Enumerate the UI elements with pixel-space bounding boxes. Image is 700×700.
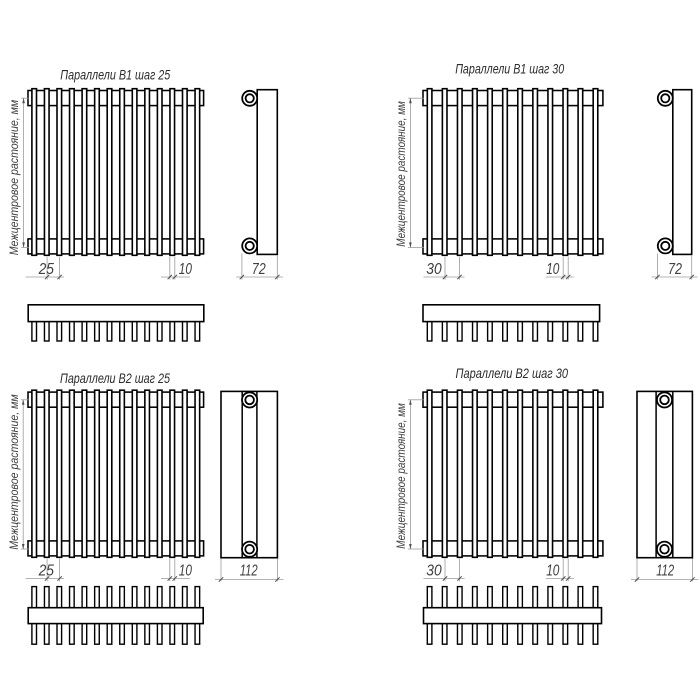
svg-text:72: 72 [668,261,682,278]
svg-text:112: 112 [240,563,258,580]
svg-text:Параллели В1 шаг 25: Параллели В1 шаг 25 [60,68,170,83]
svg-text:Параллели В1 шаг 30: Параллели В1 шаг 30 [455,62,564,77]
svg-text:10: 10 [179,563,192,580]
svg-text:112: 112 [656,563,674,580]
svg-text:10: 10 [179,261,192,278]
svg-text:Межцентровое растояние, мм: Межцентровое растояние, мм [7,99,21,255]
svg-text:25: 25 [38,563,55,580]
svg-text:Межцентровое растояние, мм: Межцентровое растояние, мм [7,394,21,550]
svg-text:30: 30 [426,563,442,580]
svg-text:Параллели В2 шаг 30: Параллели В2 шаг 30 [456,366,569,381]
svg-text:Межцентровое растояние, мм: Межцентровое растояние, мм [394,403,408,549]
svg-text:Межцентровое растояние, мм: Межцентровое растояние, мм [394,101,408,247]
svg-text:30: 30 [426,261,442,278]
svg-text:10: 10 [546,261,559,278]
svg-text:72: 72 [252,261,266,278]
svg-text:25: 25 [38,261,55,278]
svg-text:Параллели В2 шаг 25: Параллели В2 шаг 25 [60,371,170,386]
svg-text:10: 10 [546,563,559,580]
